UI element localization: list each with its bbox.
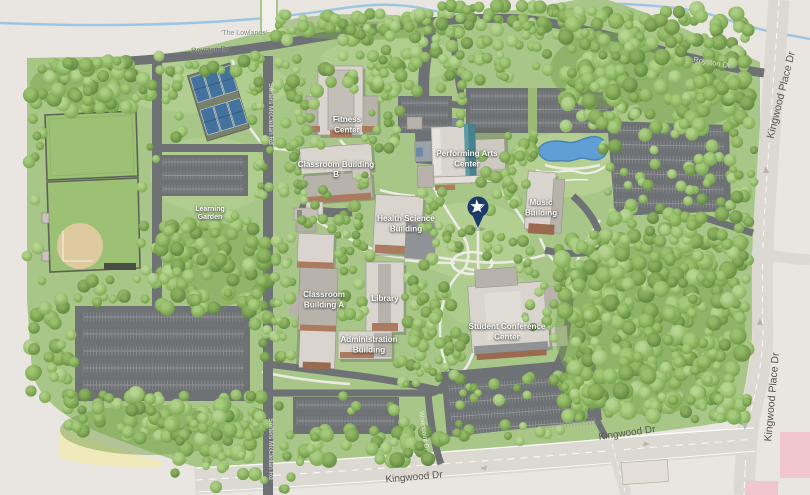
svg-text:Music: Music (530, 198, 553, 207)
svg-text:Sorters McClellan Rd: Sorters McClellan Rd (267, 83, 274, 145)
svg-text:Performing Arts: Performing Arts (436, 149, 498, 158)
svg-text:Library: Library (371, 294, 399, 303)
svg-text:Fitness: Fitness (333, 115, 362, 124)
svg-text:Building: Building (390, 225, 422, 234)
svg-text:Building A: Building A (304, 301, 344, 310)
svg-text:Classroom: Classroom (303, 290, 345, 299)
svg-text:Health Science: Health Science (377, 214, 435, 223)
svg-text:Center: Center (334, 126, 360, 135)
svg-text:Administration: Administration (340, 335, 397, 344)
svg-text:B: B (333, 170, 339, 179)
svg-text:Sorters McClellan Rd: Sorters McClellan Rd (267, 418, 274, 480)
svg-text:Center: Center (494, 333, 520, 342)
svg-text:Building: Building (525, 209, 557, 218)
svg-text:Center: Center (454, 160, 480, 169)
svg-text:Classroom Building: Classroom Building (298, 160, 375, 169)
svg-text:‘The Lowlands’: ‘The Lowlands’ (221, 30, 268, 37)
svg-text:Garden: Garden (198, 214, 223, 221)
svg-text:Building: Building (353, 346, 385, 355)
svg-text:Student Conference: Student Conference (469, 322, 546, 331)
svg-text:Learning: Learning (195, 206, 225, 213)
